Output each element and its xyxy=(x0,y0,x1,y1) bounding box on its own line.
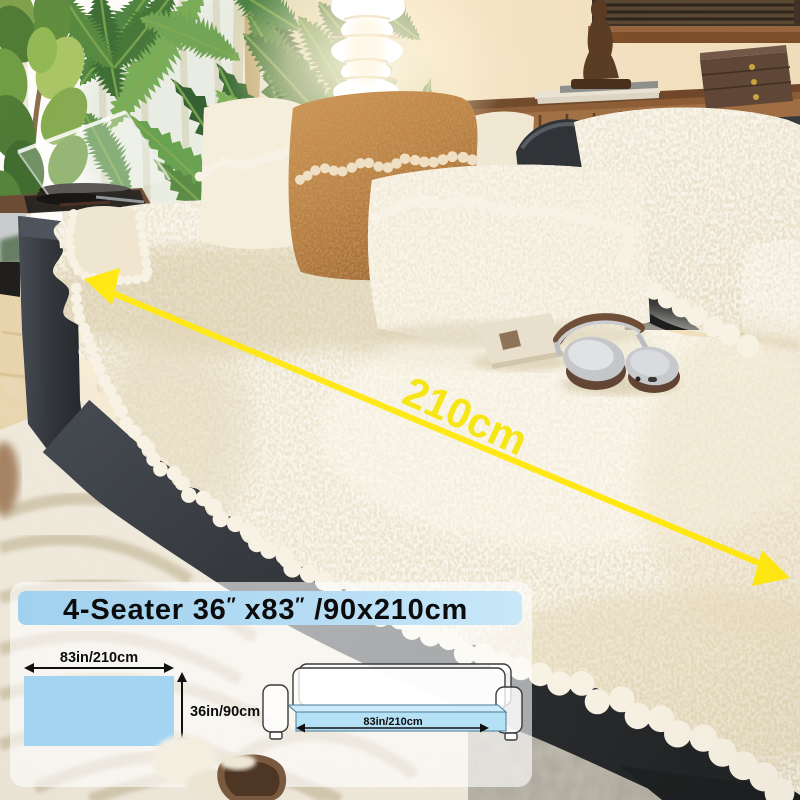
svg-text:83in/210cm: 83in/210cm xyxy=(60,650,138,666)
svg-text:36in/90cm: 36in/90cm xyxy=(190,704,260,720)
svg-text:4-Seater 36″x83″/90x210cm: 4-Seater 36″x83″/90x210cm xyxy=(63,594,468,626)
svg-text:83in/210cm: 83in/210cm xyxy=(363,716,423,728)
